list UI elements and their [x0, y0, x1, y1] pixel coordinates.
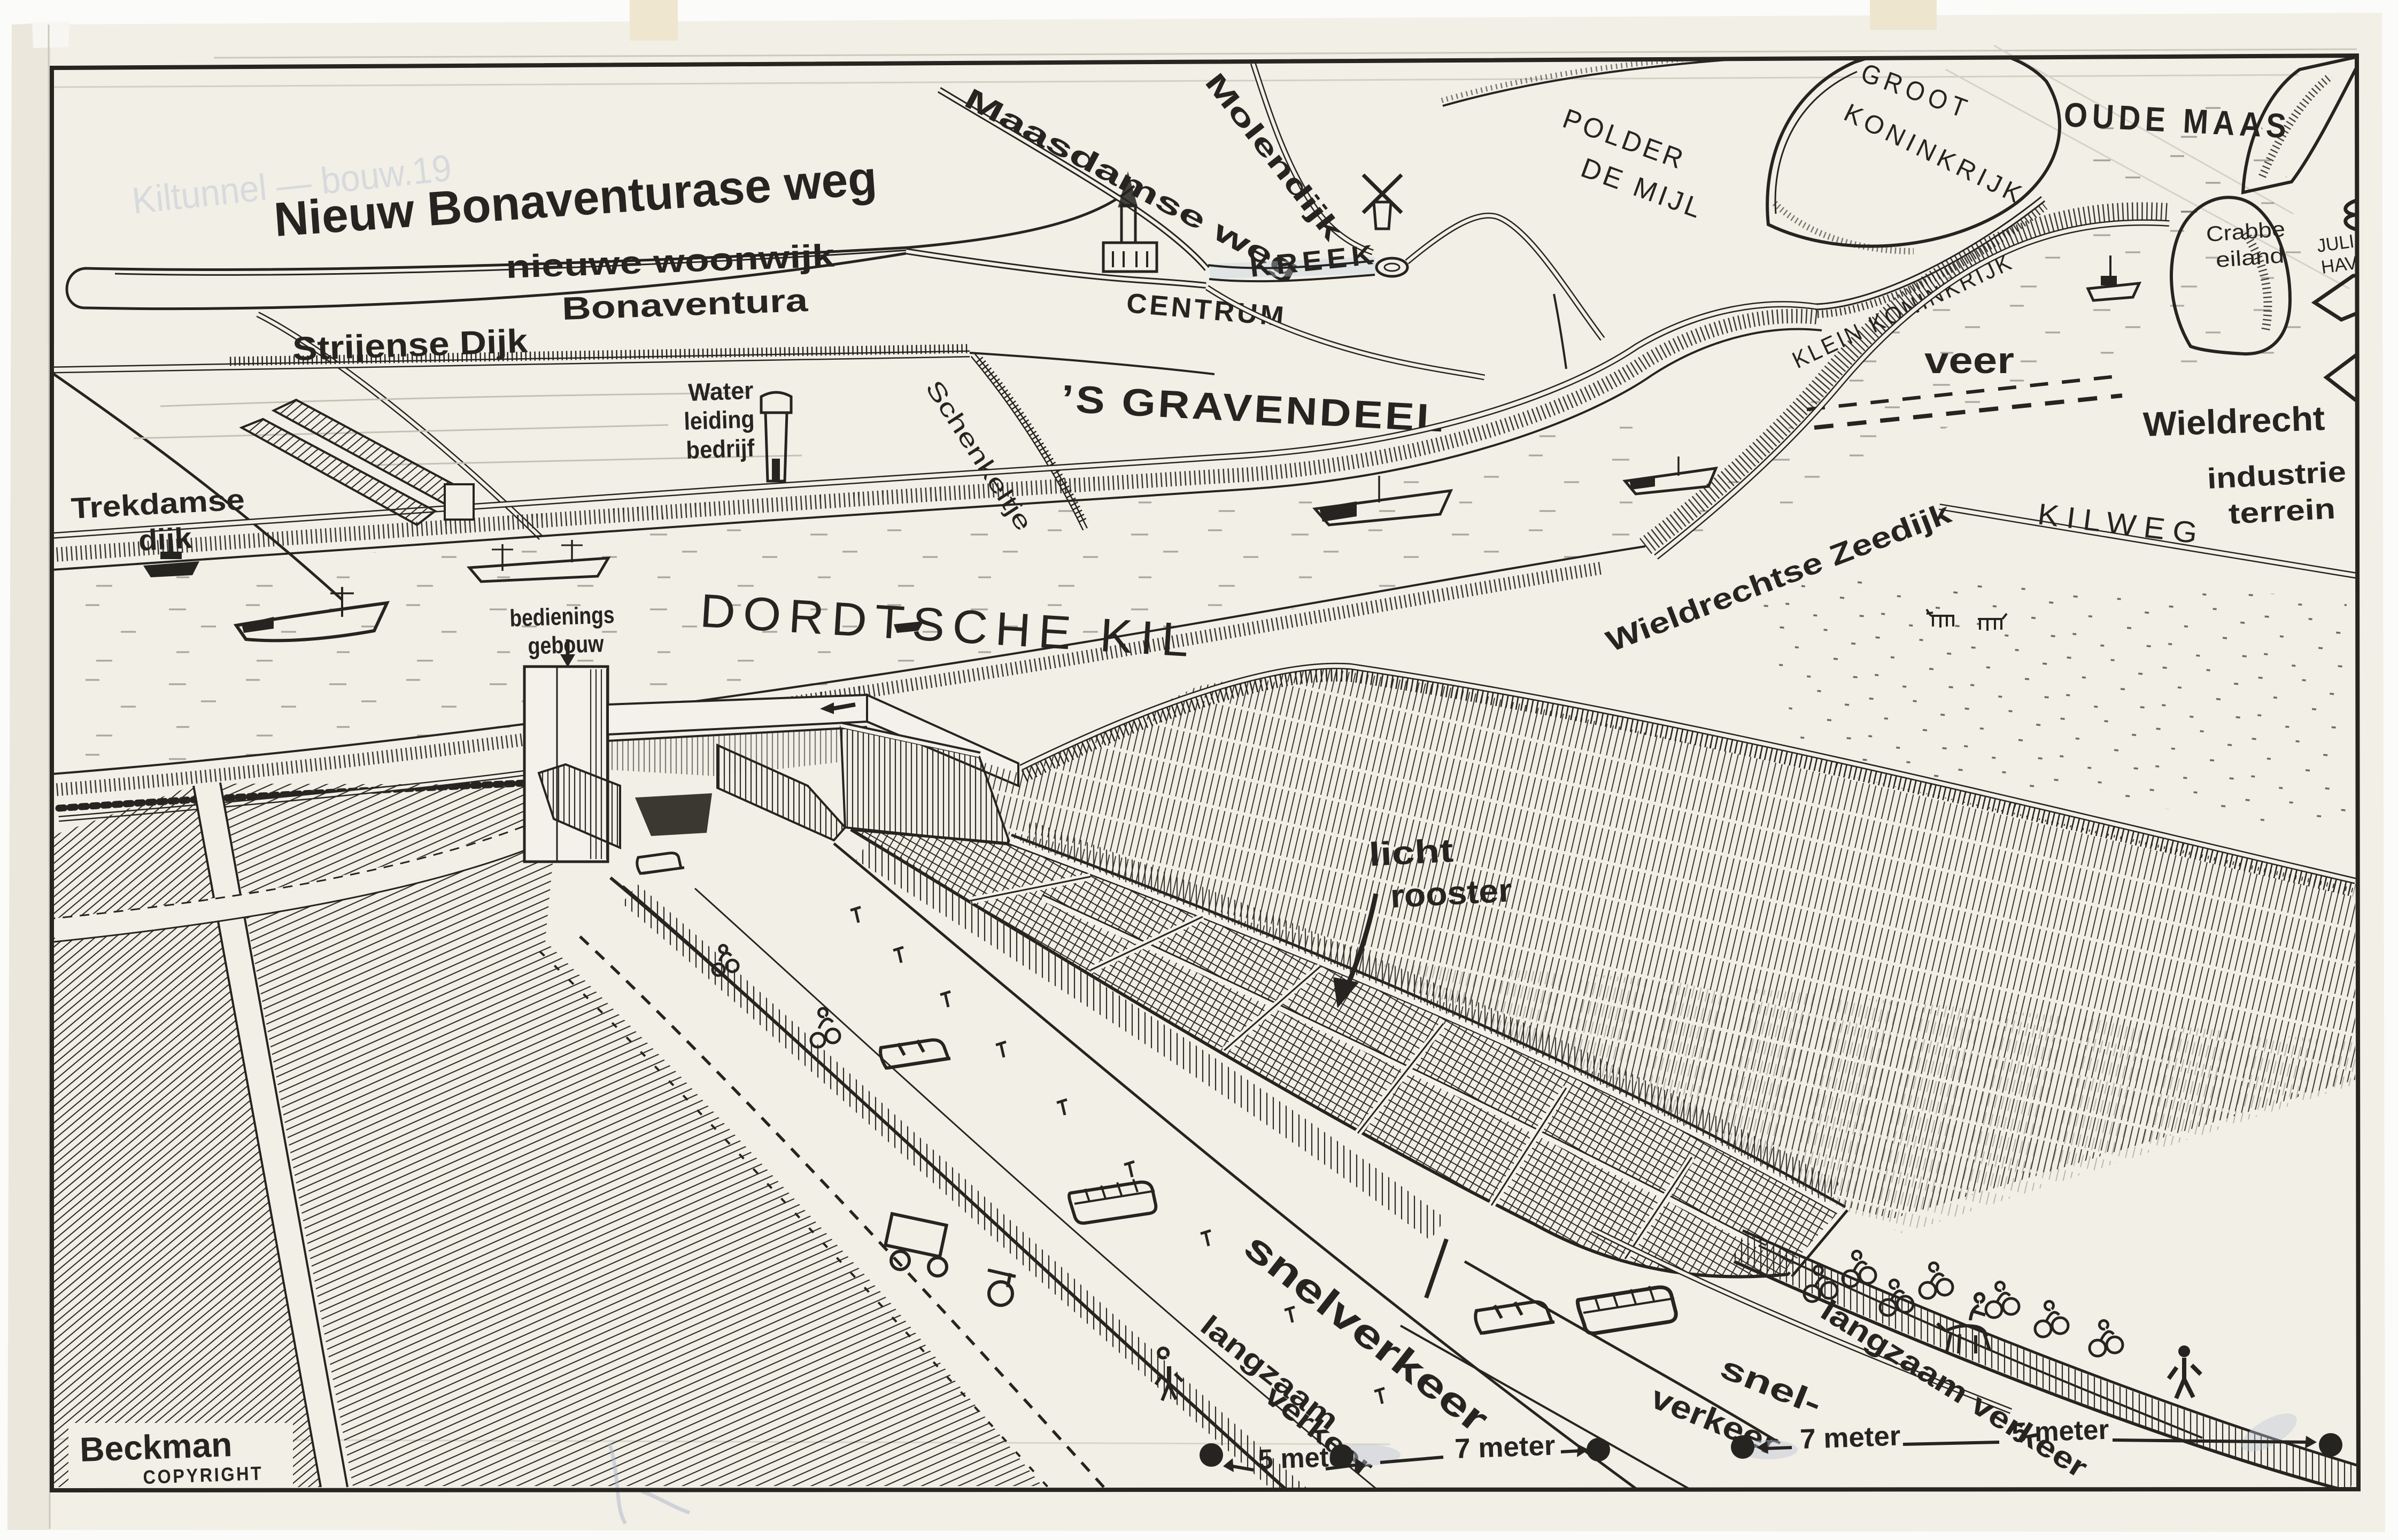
- svg-text:bedienings: bedienings: [509, 601, 615, 632]
- svg-text:rooster: rooster: [1389, 872, 1513, 915]
- svg-text:7 meter: 7 meter: [1799, 1420, 1901, 1455]
- svg-text:Wieldrecht: Wieldrecht: [2142, 399, 2325, 444]
- svg-text:5 meter: 5 meter: [2011, 1414, 2109, 1449]
- svg-text:eiland: eiland: [2215, 244, 2285, 272]
- svg-text:licht: licht: [1368, 832, 1454, 873]
- svg-text:veer: veer: [1924, 339, 2014, 381]
- svg-text:leiding: leiding: [684, 405, 755, 435]
- svg-text:COPYRIGHT: COPYRIGHT: [143, 1462, 264, 1488]
- svg-text:Water: Water: [688, 376, 754, 406]
- svg-text:terrein: terrein: [2227, 493, 2336, 530]
- svg-text:Beckman: Beckman: [79, 1425, 233, 1469]
- svg-text:7 meter: 7 meter: [1454, 1430, 1556, 1465]
- svg-text:dijk: dijk: [137, 521, 193, 557]
- svg-text:bedrijf: bedrijf: [686, 434, 755, 464]
- svg-text:5 meter: 5 meter: [1257, 1441, 1355, 1475]
